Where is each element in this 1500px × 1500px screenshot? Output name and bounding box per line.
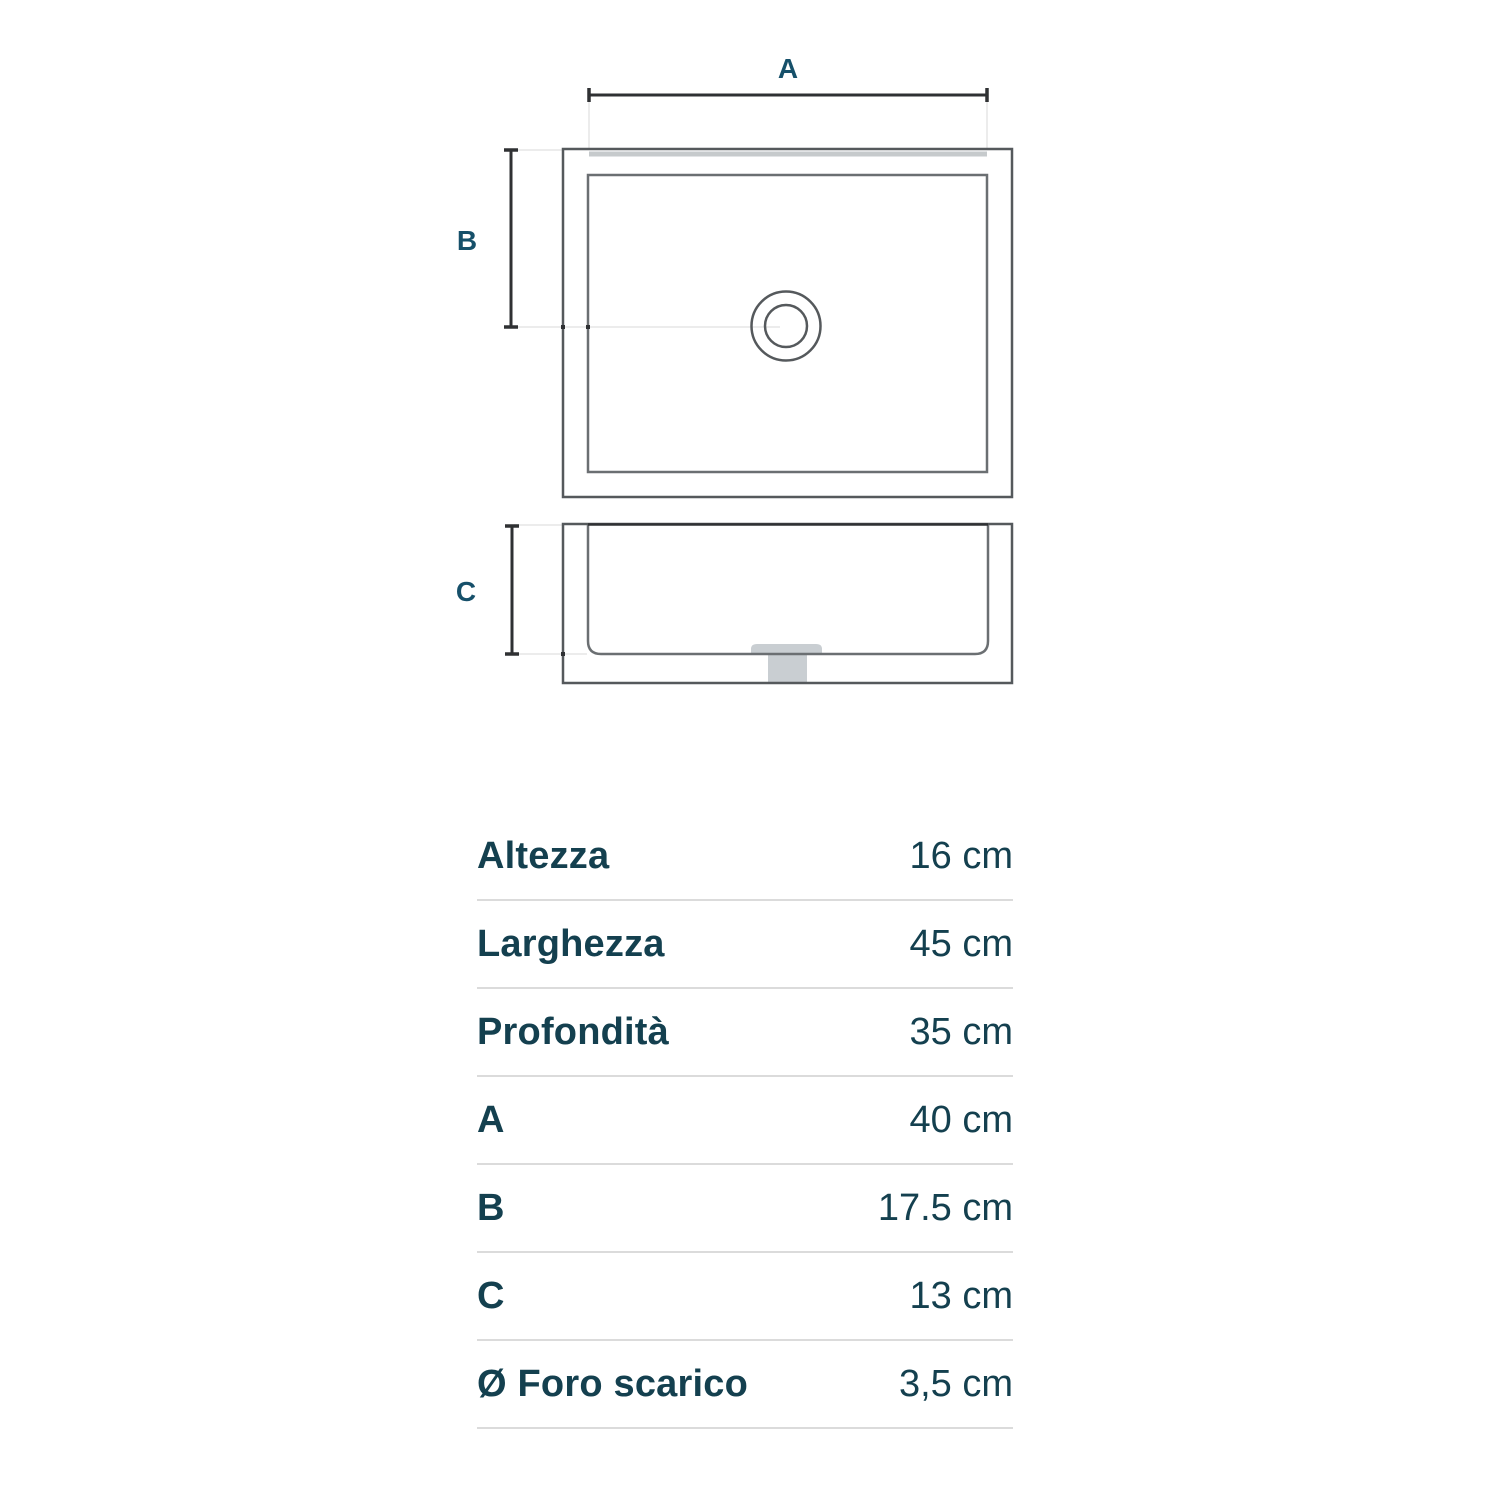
- spec-label: B: [477, 1189, 505, 1227]
- dimension-a: A: [589, 53, 987, 102]
- spec-value: 35 cm: [910, 1013, 1013, 1051]
- side-view: [514, 524, 1012, 683]
- spec-value: 45 cm: [910, 925, 1013, 963]
- spec-label: Altezza: [477, 837, 609, 875]
- junction-dot: [561, 325, 565, 329]
- spec-value: 3,5 cm: [899, 1365, 1013, 1403]
- spec-label: Larghezza: [477, 925, 665, 963]
- spec-row-larghezza: Larghezza 45 cm: [477, 901, 1013, 989]
- spec-row-b: B 17.5 cm: [477, 1165, 1013, 1253]
- top-view-basin-edge: [588, 175, 987, 472]
- dim-label-c: C: [456, 576, 476, 607]
- spec-value: 16 cm: [910, 837, 1013, 875]
- dim-label-a: A: [778, 53, 798, 84]
- spec-value: 17.5 cm: [878, 1189, 1013, 1227]
- spec-value: 40 cm: [910, 1101, 1013, 1139]
- spec-row-a: A 40 cm: [477, 1077, 1013, 1165]
- dim-label-b: B: [457, 225, 477, 256]
- junction-dot: [561, 652, 565, 656]
- side-view-basin-profile: [588, 525, 988, 654]
- junction-dot: [586, 325, 590, 329]
- spec-label: Profondità: [477, 1013, 669, 1051]
- dimension-b: B: [457, 150, 518, 327]
- spec-row-profondita: Profondità 35 cm: [477, 989, 1013, 1077]
- spec-row-c: C 13 cm: [477, 1253, 1013, 1341]
- spec-label: Ø Foro scarico: [477, 1365, 748, 1403]
- spec-label: C: [477, 1277, 505, 1315]
- spec-sheet-page: A B: [0, 0, 1500, 1500]
- spec-table: Altezza 16 cm Larghezza 45 cm Profondità…: [477, 813, 1013, 1429]
- dimension-c: C: [456, 526, 519, 654]
- drain-stub-stem: [768, 654, 807, 683]
- sink-technical-drawing: A B: [0, 0, 1500, 760]
- top-view: [513, 97, 1012, 497]
- spec-value: 13 cm: [910, 1277, 1013, 1315]
- spec-row-altezza: Altezza 16 cm: [477, 813, 1013, 901]
- spec-row-foro-scarico: Ø Foro scarico 3,5 cm: [477, 1341, 1013, 1429]
- top-view-outer-rim: [563, 149, 1012, 497]
- spec-label: A: [477, 1101, 505, 1139]
- drain-stub-flange: [751, 644, 822, 654]
